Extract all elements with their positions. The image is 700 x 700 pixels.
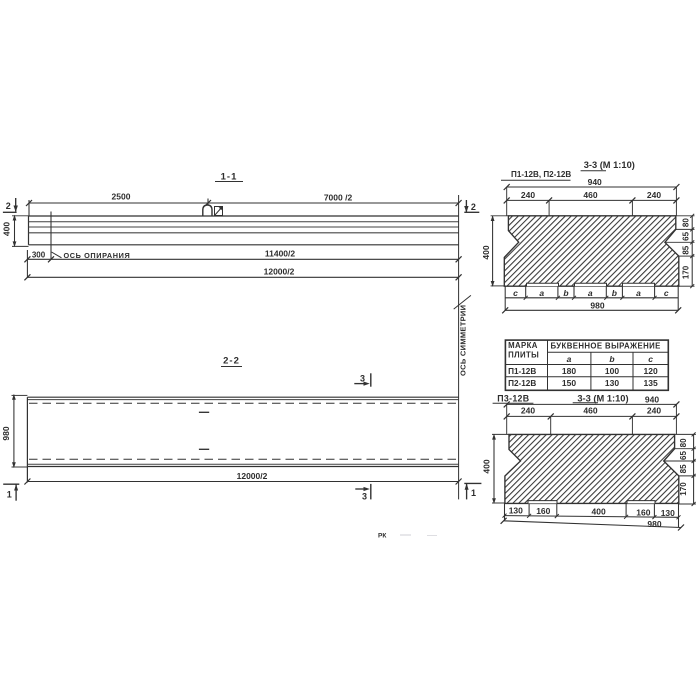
svg-text:1: 1 bbox=[471, 488, 476, 498]
svg-text:П1-12В, П2-12В: П1-12В, П2-12В bbox=[511, 170, 571, 179]
svg-text:400: 400 bbox=[2, 222, 12, 236]
svg-text:240: 240 bbox=[647, 190, 661, 200]
svg-text:МАРКА: МАРКА bbox=[508, 341, 538, 350]
svg-text:85: 85 bbox=[679, 464, 688, 473]
svg-text:300: 300 bbox=[32, 251, 46, 260]
svg-text:b: b bbox=[563, 288, 568, 298]
svg-text:150: 150 bbox=[562, 378, 576, 388]
svg-text:400: 400 bbox=[482, 459, 492, 473]
svg-text:80: 80 bbox=[679, 438, 688, 447]
svg-text:240: 240 bbox=[521, 406, 535, 416]
svg-text:7000 /2: 7000 /2 bbox=[324, 193, 353, 203]
svg-text:11400/2: 11400/2 bbox=[265, 249, 296, 259]
svg-text:ОСЬ ОПИРАНИЯ: ОСЬ ОПИРАНИЯ bbox=[64, 251, 131, 260]
svg-text:65: 65 bbox=[682, 231, 691, 240]
svg-text:ПЛИТЫ: ПЛИТЫ bbox=[508, 351, 539, 360]
svg-text:130: 130 bbox=[509, 506, 523, 516]
svg-text:a: a bbox=[636, 288, 641, 298]
svg-text:П2-12В: П2-12В bbox=[508, 379, 536, 388]
svg-text:2: 2 bbox=[471, 202, 476, 212]
svg-text:3: 3 bbox=[360, 374, 365, 384]
svg-text:b: b bbox=[612, 288, 617, 298]
svg-text:100: 100 bbox=[605, 366, 619, 376]
svg-text:12000/2: 12000/2 bbox=[237, 471, 268, 481]
svg-text:240: 240 bbox=[647, 406, 661, 416]
svg-text:85: 85 bbox=[682, 245, 691, 254]
svg-text:b: b bbox=[609, 354, 614, 364]
svg-text:65: 65 bbox=[679, 451, 688, 460]
svg-text:2: 2 bbox=[6, 201, 11, 211]
svg-text:c: c bbox=[648, 354, 653, 364]
svg-text:П1-12В: П1-12В bbox=[508, 367, 536, 376]
svg-text:ОСЬ СИММЕТРИИ: ОСЬ СИММЕТРИИ bbox=[459, 305, 468, 376]
svg-text:2-2: 2-2 bbox=[223, 356, 240, 367]
svg-text:1-1: 1-1 bbox=[221, 172, 238, 183]
svg-text:400: 400 bbox=[481, 245, 491, 259]
svg-text:400: 400 bbox=[592, 507, 606, 517]
svg-text:460: 460 bbox=[583, 406, 597, 416]
svg-text:980: 980 bbox=[590, 300, 604, 310]
svg-text:3-3 (М 1:10): 3-3 (М 1:10) bbox=[577, 393, 628, 403]
svg-text:940: 940 bbox=[588, 177, 602, 187]
svg-text:12000/2: 12000/2 bbox=[264, 267, 295, 277]
svg-text:РК: РК bbox=[378, 533, 386, 540]
svg-text:170: 170 bbox=[682, 265, 691, 279]
svg-text:c: c bbox=[664, 288, 669, 298]
svg-text:a: a bbox=[539, 288, 544, 298]
svg-text:a: a bbox=[567, 354, 572, 364]
svg-text:180: 180 bbox=[562, 366, 576, 376]
svg-text:c: c bbox=[513, 288, 518, 298]
svg-text:160: 160 bbox=[536, 506, 550, 516]
svg-text:460: 460 bbox=[583, 190, 597, 200]
svg-text:БУКВЕННОЕ ВЫРАЖЕНИЕ: БУКВЕННОЕ ВЫРАЖЕНИЕ bbox=[551, 341, 661, 350]
svg-text:120: 120 bbox=[644, 366, 658, 376]
svg-text:1: 1 bbox=[7, 490, 12, 500]
svg-text:130: 130 bbox=[605, 378, 619, 388]
svg-text:940: 940 bbox=[645, 395, 659, 405]
svg-text:135: 135 bbox=[644, 378, 658, 388]
svg-text:П3-12В: П3-12В bbox=[497, 394, 529, 404]
svg-text:980: 980 bbox=[647, 519, 661, 529]
svg-text:160: 160 bbox=[636, 508, 650, 518]
svg-text:2500: 2500 bbox=[112, 192, 131, 202]
svg-text:3-3 (М 1:10): 3-3 (М 1:10) bbox=[584, 160, 635, 170]
svg-text:170: 170 bbox=[679, 482, 688, 496]
svg-text:a: a bbox=[588, 288, 593, 298]
svg-text:3: 3 bbox=[362, 492, 367, 502]
svg-text:980: 980 bbox=[1, 426, 11, 440]
svg-text:80: 80 bbox=[682, 218, 691, 227]
svg-text:130: 130 bbox=[661, 508, 675, 518]
svg-text:240: 240 bbox=[521, 190, 535, 200]
